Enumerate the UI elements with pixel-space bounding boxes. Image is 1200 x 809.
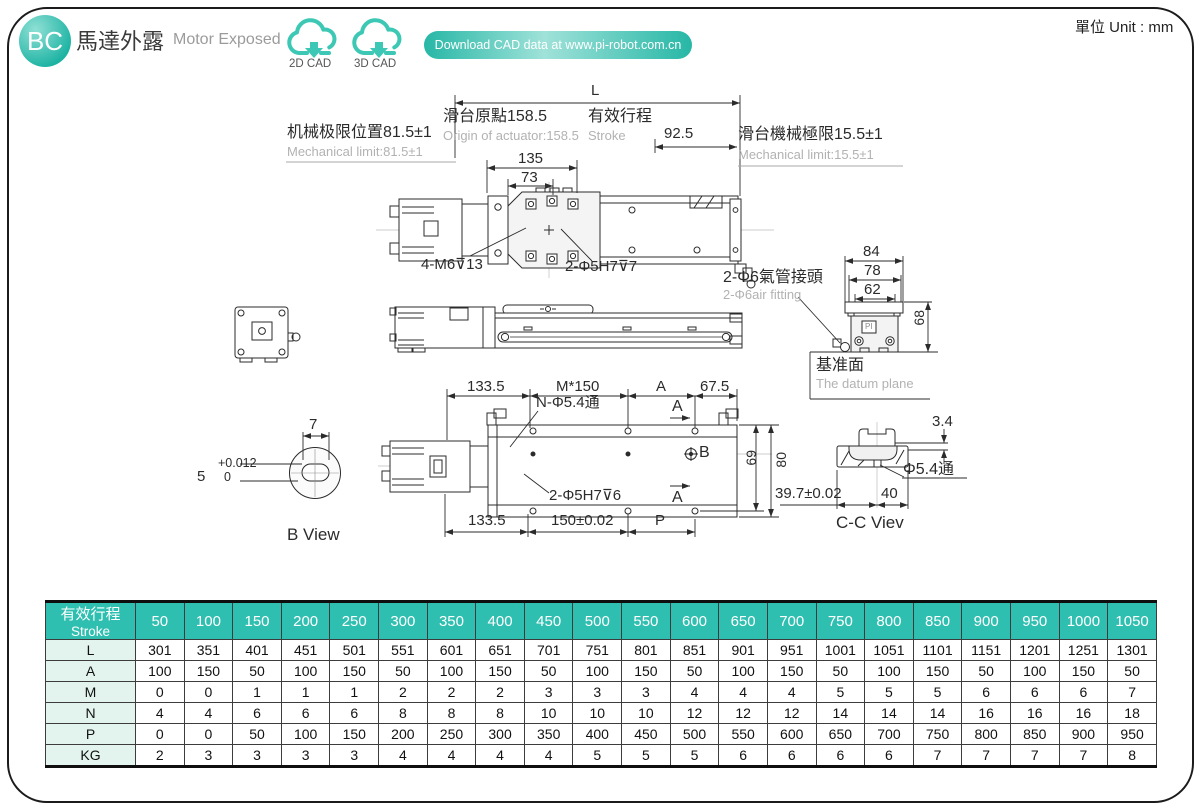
table-cell: 0 bbox=[136, 682, 185, 703]
table-cell: 3 bbox=[573, 682, 622, 703]
table-cell: 8 bbox=[379, 703, 428, 724]
table-cell: 50 bbox=[379, 661, 428, 682]
table-cell: 12 bbox=[719, 703, 768, 724]
table-cell: 651 bbox=[476, 640, 525, 661]
table-row: A100150501001505010015050100150501001505… bbox=[46, 661, 1157, 682]
table-cell: 150 bbox=[1059, 661, 1108, 682]
table-cell: 50 bbox=[962, 661, 1011, 682]
table-cell: 600 bbox=[767, 724, 816, 745]
cad-2d-download-icon[interactable] bbox=[285, 16, 343, 62]
table-cell: 3 bbox=[524, 682, 573, 703]
stroke-column-header: 850 bbox=[913, 602, 962, 640]
table-cell: 400 bbox=[573, 724, 622, 745]
table-cell: 7 bbox=[962, 745, 1011, 767]
unit-label: 單位 Unit : mm bbox=[1075, 16, 1173, 37]
download-cad-banner[interactable]: Download CAD data at www.pi-robot.com.cn bbox=[424, 31, 692, 59]
table-cell: 7 bbox=[1059, 745, 1108, 767]
table-cell: 6 bbox=[281, 703, 330, 724]
table-cell: 100 bbox=[427, 661, 476, 682]
table-cell: 800 bbox=[962, 724, 1011, 745]
table-cell: 6 bbox=[1059, 682, 1108, 703]
row-label: KG bbox=[46, 745, 136, 767]
table-cell: 6 bbox=[816, 745, 865, 767]
table-cell: 10 bbox=[573, 703, 622, 724]
table-cell: 1 bbox=[281, 682, 330, 703]
table-cell: 5 bbox=[913, 682, 962, 703]
table-cell: 3 bbox=[330, 745, 379, 767]
table-cell: 8 bbox=[476, 703, 525, 724]
table-cell: 16 bbox=[1010, 703, 1059, 724]
table-cell: 450 bbox=[622, 724, 671, 745]
table-cell: 150 bbox=[913, 661, 962, 682]
table-cell: 351 bbox=[184, 640, 233, 661]
stroke-column-header: 200 bbox=[281, 602, 330, 640]
stroke-column-header: 750 bbox=[816, 602, 865, 640]
table-cell: 50 bbox=[233, 724, 282, 745]
table-cell: 100 bbox=[1010, 661, 1059, 682]
table-cell: 100 bbox=[719, 661, 768, 682]
table-cell: 150 bbox=[622, 661, 671, 682]
table-cell: 2 bbox=[476, 682, 525, 703]
table-cell: 8 bbox=[1108, 745, 1157, 767]
table-cell: 14 bbox=[865, 703, 914, 724]
table-cell: 3 bbox=[281, 745, 330, 767]
row-label: P bbox=[46, 724, 136, 745]
table-cell: 601 bbox=[427, 640, 476, 661]
table-cell: 851 bbox=[670, 640, 719, 661]
stroke-column-header: 1000 bbox=[1059, 602, 1108, 640]
table-cell: 1301 bbox=[1108, 640, 1157, 661]
table-cell: 1251 bbox=[1059, 640, 1108, 661]
table-cell: 550 bbox=[719, 724, 768, 745]
stroke-table: 有效行程Stroke501001502002503003504004505005… bbox=[45, 600, 1157, 768]
table-cell: 4 bbox=[136, 703, 185, 724]
table-cell: 950 bbox=[1108, 724, 1157, 745]
table-cell: 3 bbox=[622, 682, 671, 703]
row-label: N bbox=[46, 703, 136, 724]
table-cell: 650 bbox=[816, 724, 865, 745]
table-row: M001112223334445556667 bbox=[46, 682, 1157, 703]
stroke-column-header: 800 bbox=[865, 602, 914, 640]
table-cell: 1051 bbox=[865, 640, 914, 661]
table-cell: 200 bbox=[379, 724, 428, 745]
table-cell: 901 bbox=[719, 640, 768, 661]
table-cell: 16 bbox=[1059, 703, 1108, 724]
table-cell: 3 bbox=[184, 745, 233, 767]
download-arrow-icon bbox=[305, 42, 323, 58]
stroke-column-header: 550 bbox=[622, 602, 671, 640]
cad-3d-download-icon[interactable] bbox=[350, 16, 408, 62]
table-cell: 501 bbox=[330, 640, 379, 661]
table-cell: 100 bbox=[865, 661, 914, 682]
table-cell: 5 bbox=[670, 745, 719, 767]
row-label: M bbox=[46, 682, 136, 703]
table-cell: 4 bbox=[427, 745, 476, 767]
table-cell: 14 bbox=[816, 703, 865, 724]
table-cell: 50 bbox=[816, 661, 865, 682]
table-cell: 5 bbox=[622, 745, 671, 767]
table-cell: 150 bbox=[330, 661, 379, 682]
stroke-column-header: 650 bbox=[719, 602, 768, 640]
table-cell: 6 bbox=[719, 745, 768, 767]
table-cell: 6 bbox=[1010, 682, 1059, 703]
table-cell: 951 bbox=[767, 640, 816, 661]
table-cell: 5 bbox=[865, 682, 914, 703]
table-cell: 6 bbox=[330, 703, 379, 724]
table-cell: 100 bbox=[281, 724, 330, 745]
table-cell: 1 bbox=[330, 682, 379, 703]
stroke-column-header: 300 bbox=[379, 602, 428, 640]
table-cell: 150 bbox=[767, 661, 816, 682]
table-cell: 6 bbox=[767, 745, 816, 767]
table-cell: 4 bbox=[719, 682, 768, 703]
table-cell: 900 bbox=[1059, 724, 1108, 745]
table-cell: 4 bbox=[476, 745, 525, 767]
series-badge-label: BC bbox=[27, 26, 63, 57]
download-arrow-icon bbox=[370, 42, 388, 58]
table-cell: 6 bbox=[962, 682, 1011, 703]
table-cell: 350 bbox=[524, 724, 573, 745]
table-row: N4466688810101012121214141416161618 bbox=[46, 703, 1157, 724]
table-cell: 750 bbox=[913, 724, 962, 745]
table-cell: 4 bbox=[767, 682, 816, 703]
table-cell: 500 bbox=[670, 724, 719, 745]
table-cell: 6 bbox=[865, 745, 914, 767]
table-cell: 6 bbox=[233, 703, 282, 724]
table-row: KG233334444555666677778 bbox=[46, 745, 1157, 767]
stroke-column-header: 1050 bbox=[1108, 602, 1157, 640]
stroke-column-header: 400 bbox=[476, 602, 525, 640]
table-cell: 14 bbox=[913, 703, 962, 724]
table-cell: 701 bbox=[524, 640, 573, 661]
table-cell: 1 bbox=[233, 682, 282, 703]
table-cell: 2 bbox=[427, 682, 476, 703]
table-cell: 7 bbox=[913, 745, 962, 767]
table-cell: 100 bbox=[136, 661, 185, 682]
table-cell: 12 bbox=[767, 703, 816, 724]
stroke-column-header: 50 bbox=[136, 602, 185, 640]
table-cell: 4 bbox=[670, 682, 719, 703]
product-title-zh: 馬達外露 bbox=[76, 24, 164, 56]
table-cell: 18 bbox=[1108, 703, 1157, 724]
table-cell: 100 bbox=[281, 661, 330, 682]
table-cell: 301 bbox=[136, 640, 185, 661]
stroke-column-header: 600 bbox=[670, 602, 719, 640]
table-cell: 1151 bbox=[962, 640, 1011, 661]
table-cell: 50 bbox=[233, 661, 282, 682]
table-cell: 7 bbox=[1108, 682, 1157, 703]
table-cell: 1201 bbox=[1010, 640, 1059, 661]
stroke-column-header: 250 bbox=[330, 602, 379, 640]
table-cell: 4 bbox=[184, 703, 233, 724]
stroke-column-header: 450 bbox=[524, 602, 573, 640]
table-cell: 1001 bbox=[816, 640, 865, 661]
stroke-column-header: 350 bbox=[427, 602, 476, 640]
table-cell: 7 bbox=[1010, 745, 1059, 767]
stroke-column-header: 150 bbox=[233, 602, 282, 640]
table-cell: 2 bbox=[136, 745, 185, 767]
table-cell: 0 bbox=[184, 724, 233, 745]
table-cell: 401 bbox=[233, 640, 282, 661]
table-cell: 0 bbox=[136, 724, 185, 745]
table-cell: 0 bbox=[184, 682, 233, 703]
series-badge: BC bbox=[19, 15, 71, 67]
table-cell: 100 bbox=[573, 661, 622, 682]
datasheet-page: BC 馬達外露 Motor Exposed 2D CAD 3D CAD Down… bbox=[0, 0, 1200, 809]
table-cell: 850 bbox=[1010, 724, 1059, 745]
product-title-en: Motor Exposed bbox=[173, 31, 281, 49]
table-cell: 2 bbox=[379, 682, 428, 703]
table-cell: 551 bbox=[379, 640, 428, 661]
stroke-column-header: 950 bbox=[1010, 602, 1059, 640]
table-cell: 150 bbox=[184, 661, 233, 682]
table-cell: 4 bbox=[524, 745, 573, 767]
table-cell: 12 bbox=[670, 703, 719, 724]
table-cell: 1101 bbox=[913, 640, 962, 661]
table-cell: 751 bbox=[573, 640, 622, 661]
table-cell: 250 bbox=[427, 724, 476, 745]
table-cell: 3 bbox=[233, 745, 282, 767]
table-cell: 10 bbox=[622, 703, 671, 724]
table-cell: 150 bbox=[476, 661, 525, 682]
table-cell: 8 bbox=[427, 703, 476, 724]
row-label: A bbox=[46, 661, 136, 682]
stroke-column-header: 500 bbox=[573, 602, 622, 640]
table-corner-stroke-header: 有效行程Stroke bbox=[46, 602, 136, 640]
table-cell: 50 bbox=[670, 661, 719, 682]
table-cell: 50 bbox=[524, 661, 573, 682]
table-row: P005010015020025030035040045050055060065… bbox=[46, 724, 1157, 745]
table-cell: 5 bbox=[816, 682, 865, 703]
stroke-column-header: 700 bbox=[767, 602, 816, 640]
table-cell: 5 bbox=[573, 745, 622, 767]
stroke-column-header: 100 bbox=[184, 602, 233, 640]
row-label: L bbox=[46, 640, 136, 661]
table-cell: 300 bbox=[476, 724, 525, 745]
table-cell: 150 bbox=[330, 724, 379, 745]
table-cell: 50 bbox=[1108, 661, 1157, 682]
table-cell: 4 bbox=[379, 745, 428, 767]
table-cell: 801 bbox=[622, 640, 671, 661]
table-cell: 10 bbox=[524, 703, 573, 724]
table-row: L301351401451501551601651701751801851901… bbox=[46, 640, 1157, 661]
stroke-column-header: 900 bbox=[962, 602, 1011, 640]
table-cell: 700 bbox=[865, 724, 914, 745]
table-cell: 451 bbox=[281, 640, 330, 661]
table-cell: 16 bbox=[962, 703, 1011, 724]
